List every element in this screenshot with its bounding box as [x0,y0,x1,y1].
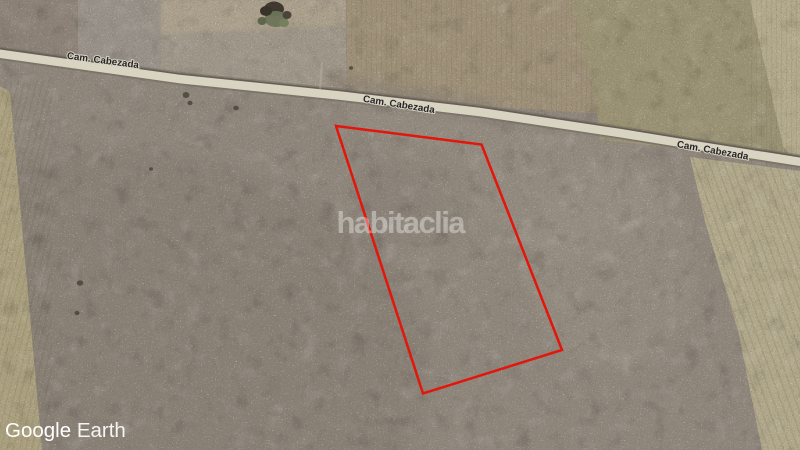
svg-text:Google Earth: Google Earth [5,419,126,442]
svg-text:habitaclia: habitaclia [337,205,467,240]
